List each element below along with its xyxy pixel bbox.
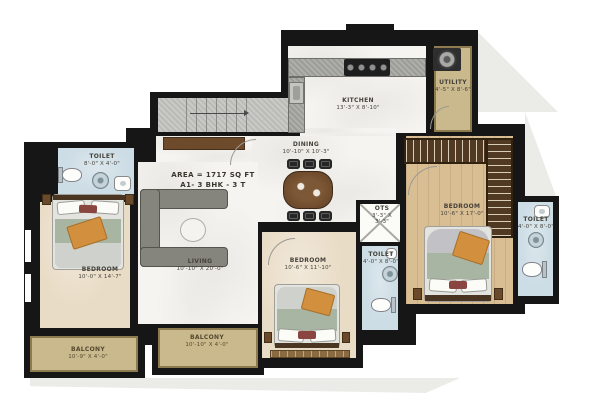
- stair-direction-arrow: [244, 110, 249, 116]
- kitchen-sink-icon: [289, 82, 304, 104]
- utility-label: UTILITY 4'-5" X 8'-6": [435, 79, 471, 93]
- stove-icon: [344, 59, 390, 76]
- dining-chair: [319, 159, 332, 169]
- toilet-wc-tank: [542, 261, 547, 278]
- area-line1: AREA = 1717 SQ FT: [171, 170, 254, 180]
- shower-icon: [382, 266, 398, 282]
- washbasin-icon: [114, 176, 131, 191]
- dining-label: DINING 10'-10" X 10'-3": [282, 141, 329, 155]
- console-table: [163, 137, 245, 150]
- nightstand: [125, 194, 134, 205]
- shower-icon: [92, 172, 109, 189]
- bedroom-right-label: BEDROOM 10'-6" X 17'-0": [440, 203, 483, 217]
- shower-icon: [528, 232, 544, 248]
- balcony-mid-label: BALCONY 10'-10" X 4'-0": [185, 334, 228, 348]
- dining-table: [283, 171, 333, 209]
- nightstand: [42, 194, 51, 205]
- shadow-right: [525, 112, 559, 204]
- stair-direction-line: [190, 113, 244, 114]
- toilet-wc-icon: [371, 298, 391, 312]
- area-line2: A1- 3 BHK - 3 T: [171, 180, 254, 190]
- kitchen-label: KITCHEN 13'-3" X 8'-10": [336, 97, 379, 111]
- toilet-right-label: TOILET 4'-0" X 8'-0": [518, 216, 554, 230]
- dining-chair: [303, 159, 316, 169]
- ots-label: OTS 3'-3" X 3'-3": [372, 205, 392, 226]
- toilet-left-label: TOILET 8'-0" X 4'-0": [84, 153, 120, 167]
- wardrobe-right: [486, 138, 513, 238]
- bedroom-mid-label: BEDROOM 10'-6" X 11'-10": [284, 257, 331, 271]
- floor-plan: AREA = 1717 SQ FT A1- 3 BHK - 3 T KITCHE…: [0, 0, 600, 400]
- area-label: AREA = 1717 SQ FT A1- 3 BHK - 3 T: [171, 170, 254, 190]
- window-left-1: [25, 230, 31, 262]
- bed-right: [424, 226, 492, 302]
- nightstand: [413, 288, 422, 300]
- shadow-top-right: [478, 32, 558, 112]
- window-left-2: [25, 274, 31, 302]
- dining-chair: [287, 211, 300, 221]
- wardrobe-top: [404, 138, 487, 164]
- balcony-left-label: BALCONY 10'-9" X 4'-0": [68, 346, 108, 360]
- washing-machine-icon: [433, 48, 461, 71]
- dining-chair: [303, 211, 316, 221]
- nightstand: [342, 332, 350, 343]
- dining-chair: [287, 159, 300, 169]
- living-label: LIVING 10'-10" X 20'-0": [176, 258, 223, 272]
- toilet-wc-icon: [522, 262, 542, 277]
- nightstand: [494, 288, 503, 300]
- bed-left: [52, 194, 124, 270]
- toilet-mid-label: TOILET 4'-0" X 8'-0": [363, 251, 399, 265]
- dining-chair: [319, 211, 332, 221]
- nightstand: [264, 332, 272, 343]
- bed-mid: [274, 284, 340, 348]
- wall-top-bump: [346, 24, 394, 34]
- toilet-wc-tank: [58, 167, 63, 183]
- wardrobe-mid-bedroom: [270, 350, 350, 358]
- toilet-wc-icon: [62, 168, 82, 182]
- toilet-wc-tank: [391, 297, 396, 313]
- shadow-bottom: [30, 378, 460, 393]
- coffee-table: [180, 218, 206, 242]
- bedroom-left-label: BEDROOM 10'-0" X 14'-7": [78, 266, 121, 280]
